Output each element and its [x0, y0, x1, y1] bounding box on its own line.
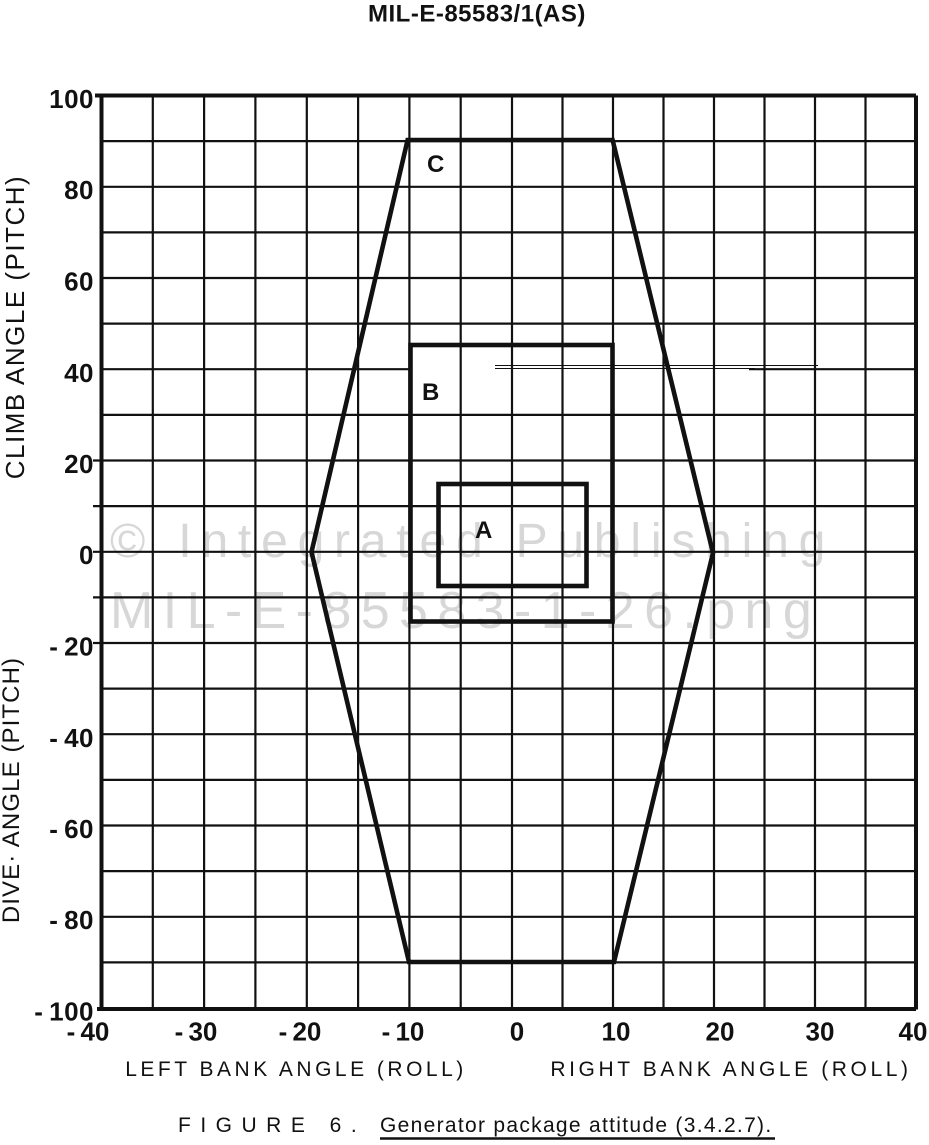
svg-text:0: 0 [79, 540, 94, 570]
svg-text:20: 20 [64, 449, 94, 479]
svg-text:- 60: - 60 [49, 814, 94, 844]
svg-text:- 80: - 80 [49, 905, 94, 935]
svg-text:- 30: - 30 [175, 1017, 218, 1047]
svg-text:A: A [475, 517, 492, 544]
svg-text:LEFT BANK ANGLE (ROLL): LEFT BANK ANGLE (ROLL) [125, 1058, 467, 1081]
svg-text:- 40: - 40 [67, 1017, 110, 1047]
svg-text:- 20: - 20 [49, 632, 94, 662]
svg-text:40: 40 [64, 358, 94, 388]
svg-text:Generator package attitude (3.: Generator package attitude (3.4.2.7). [380, 1114, 772, 1137]
svg-text:60: 60 [64, 267, 94, 297]
svg-text:80: 80 [64, 175, 94, 205]
svg-text:FIGURE 6.: FIGURE 6. [178, 1114, 366, 1137]
svg-text:0: 0 [510, 1017, 524, 1047]
svg-text:100: 100 [49, 84, 94, 114]
svg-text:RIGHT BANK ANGLE (ROLL): RIGHT BANK ANGLE (ROLL) [550, 1058, 911, 1081]
svg-text:© Integrated Publishing: © Integrated Publishing [110, 515, 835, 568]
svg-text:- 10: - 10 [382, 1017, 425, 1047]
svg-text:B: B [422, 379, 439, 406]
svg-text:40: 40 [899, 1017, 928, 1047]
svg-text:DIVE· ANGLE (PITCH): DIVE· ANGLE (PITCH) [0, 657, 25, 923]
svg-text:CLIMB ANGLE (PITCH): CLIMB ANGLE (PITCH) [0, 175, 30, 479]
svg-text:10: 10 [602, 1017, 631, 1047]
svg-text:MIL-E-85583/1(AS): MIL-E-85583/1(AS) [368, 1, 586, 28]
svg-text:20: 20 [706, 1017, 735, 1047]
svg-text:- 20: - 20 [279, 1017, 322, 1047]
svg-text:30: 30 [806, 1017, 835, 1047]
svg-text:- 40: - 40 [49, 723, 94, 753]
svg-text:C: C [427, 151, 444, 178]
